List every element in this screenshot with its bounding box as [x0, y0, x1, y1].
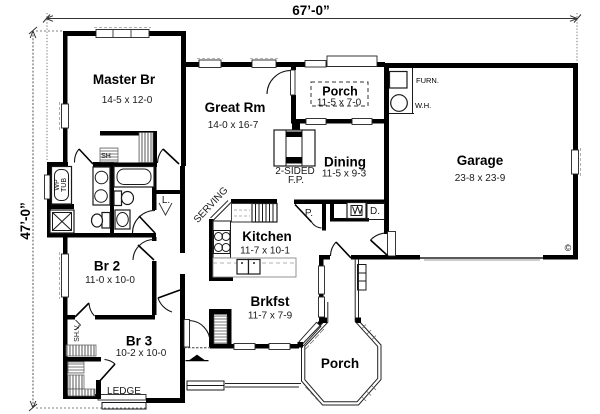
svg-text:Garage: Garage [457, 153, 504, 168]
svg-text:67’-0”: 67’-0” [292, 3, 330, 18]
svg-text:Br 2: Br 2 [94, 259, 120, 274]
svg-text:11-5 x 7-0: 11-5 x 7-0 [317, 98, 362, 109]
svg-text:47’-0”: 47’-0” [18, 202, 33, 240]
svg-text:TUB: TUB [61, 178, 68, 192]
svg-text:Brkfst: Brkfst [250, 294, 290, 309]
svg-text:FURN.: FURN. [416, 76, 439, 85]
svg-text:D.: D. [370, 206, 380, 217]
svg-text:23-8 x 23-9: 23-8 x 23-9 [455, 173, 506, 184]
svg-text:11-0 x 10-0: 11-0 x 10-0 [85, 275, 135, 286]
svg-text:11-7 x 7-9: 11-7 x 7-9 [248, 311, 293, 322]
svg-text:SH.V.: SH.V. [74, 324, 81, 342]
svg-text:Dining: Dining [324, 155, 366, 170]
svg-text:11-7 x 10-1: 11-7 x 10-1 [240, 246, 290, 257]
svg-text:Porch: Porch [322, 85, 357, 99]
svg-text:L.: L. [162, 195, 170, 206]
svg-text:LEDGE: LEDGE [107, 386, 141, 397]
svg-text:11-5 x 9-3: 11-5 x 9-3 [322, 169, 367, 180]
svg-text:Kitchen: Kitchen [242, 229, 292, 244]
svg-text:P.: P. [305, 208, 313, 219]
svg-text:WP: WP [54, 179, 61, 191]
svg-text:14-5 x 12-0: 14-5 x 12-0 [102, 95, 153, 106]
svg-text:W.H.: W.H. [415, 101, 431, 110]
svg-text:Br 3: Br 3 [126, 334, 153, 349]
svg-text:10-2 x 10-0: 10-2 x 10-0 [116, 348, 167, 359]
svg-text:F.P.: F.P. [288, 175, 304, 186]
svg-text:Porch: Porch [321, 356, 359, 371]
svg-text:SH: SH [101, 153, 111, 160]
svg-text:©: © [565, 243, 572, 253]
svg-text:Master Br: Master Br [93, 72, 156, 87]
svg-text:14-0 x 16-7: 14-0 x 16-7 [208, 120, 259, 131]
svg-text:Great Rm: Great Rm [205, 100, 266, 115]
